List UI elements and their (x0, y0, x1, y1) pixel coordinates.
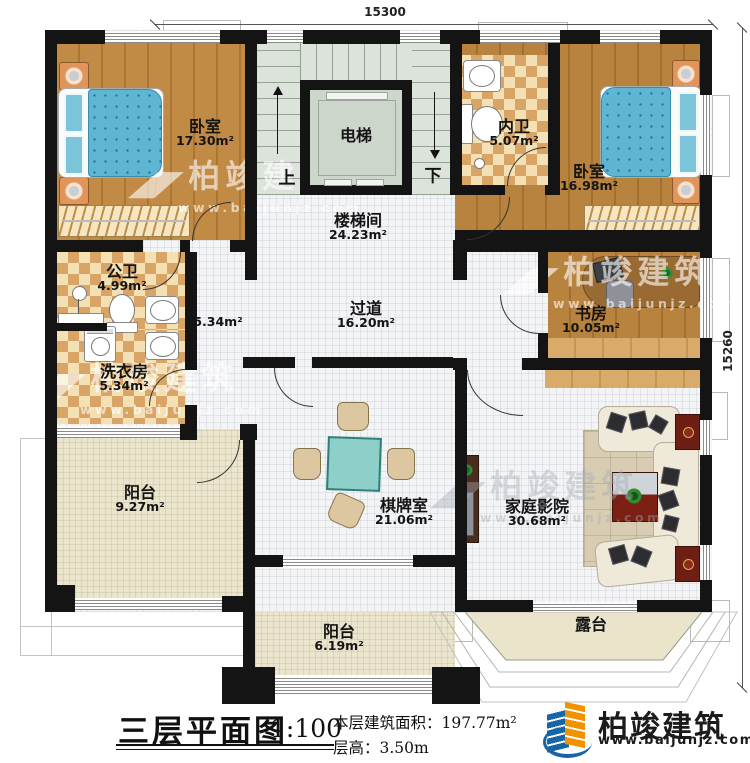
window (533, 602, 637, 612)
sofa-cushion (661, 467, 681, 487)
stair-down-label: 下 (425, 162, 442, 187)
pier (432, 667, 480, 704)
wall (545, 185, 560, 195)
wall (450, 42, 462, 195)
floor-drain (474, 158, 485, 169)
wall (243, 440, 255, 668)
wall (455, 368, 467, 612)
table-plant (625, 487, 643, 505)
vanity-sink (145, 332, 179, 360)
room-label-stairwell: 楼梯间 24.23m² (329, 213, 387, 242)
dimension-right-value: 15260 (721, 330, 735, 372)
room-label-bedroom2: 卧室 16.98m² (560, 164, 618, 193)
window (600, 31, 660, 43)
side-table-deco (683, 559, 694, 570)
stair-arrow-down (434, 92, 435, 154)
window (701, 95, 711, 175)
wall (240, 424, 257, 440)
pillow (64, 93, 84, 133)
dimension-line-right (742, 28, 743, 688)
wall (45, 240, 143, 252)
stair-arrow-up-head (273, 86, 283, 95)
eave-outline-bottom-left (20, 626, 252, 656)
elevator-slot-bl (324, 179, 352, 186)
window (105, 31, 220, 43)
wall (45, 30, 57, 585)
elevator-slot-br (356, 179, 384, 186)
floor-area-label: 本层建筑面积： (333, 714, 442, 732)
wardrobe-rod (588, 220, 695, 222)
theater-top-strip (545, 370, 700, 388)
floor-height-row: 层高：3.50m (333, 736, 429, 758)
nightstand (672, 60, 700, 88)
stair-arrow-down-head (430, 150, 440, 159)
wall (243, 357, 295, 368)
desk-chair (606, 280, 634, 308)
window (701, 258, 711, 338)
wall (522, 358, 712, 370)
wall (538, 243, 548, 293)
sink-basin (150, 336, 176, 357)
hall-area-label: 5.34m² (193, 316, 242, 329)
wall (312, 357, 453, 368)
wall (700, 338, 712, 420)
window (400, 31, 440, 43)
window (57, 426, 180, 438)
wall (538, 333, 548, 360)
floor-plan-page: { "plan": { "dimensions": { "top": "1530… (0, 0, 750, 763)
wall (230, 240, 257, 252)
wall (45, 424, 57, 440)
window (480, 31, 560, 43)
side-table (675, 414, 700, 450)
floor-area-value: 197.77m² (442, 714, 517, 732)
wall (455, 230, 712, 243)
stair-treads-top (300, 42, 412, 80)
pillow (678, 134, 698, 174)
railing (75, 598, 222, 610)
wall (460, 185, 505, 195)
company-logo-icon (545, 700, 595, 758)
chair (293, 448, 321, 480)
wall (243, 555, 283, 567)
room-label-balcony1: 阳台 9.27m² (115, 485, 164, 514)
floor-height-value: 3.50m (380, 739, 429, 757)
wall (180, 424, 197, 440)
room-label-public-bath: 公卫 4.99m² (97, 264, 146, 293)
vanity-sink (145, 296, 179, 324)
desk-plant (660, 266, 674, 280)
window (267, 31, 303, 43)
room-label-corridor: 过道 16.20m² (337, 301, 395, 330)
room-label-terrace: 露台 (575, 617, 607, 633)
room-label-elevator: 电梯 (340, 128, 372, 144)
wardrobe (58, 205, 190, 237)
logo-swoosh (543, 726, 592, 758)
wall (700, 455, 712, 545)
bay-window-right-1 (712, 95, 730, 177)
side-table-deco (683, 427, 694, 438)
floor-area-row: 本层建筑面积：197.77m² (333, 711, 517, 733)
pillow (64, 135, 84, 175)
sink-basin (469, 65, 495, 87)
room-label-study: 书房 10.05m² (562, 306, 620, 335)
room-label-balcony2: 阳台 6.19m² (314, 624, 363, 653)
plan-scale: 1:100 (270, 714, 342, 743)
game-table (326, 436, 382, 492)
stand-lamp-stem (78, 299, 79, 313)
wall (560, 30, 600, 44)
stair-arrow-up (277, 92, 278, 154)
company-website: www.baijunjz.com (598, 733, 750, 748)
window (701, 420, 711, 455)
washing-machine (84, 326, 116, 362)
sofa-cushion (628, 410, 648, 430)
sink-basin (150, 300, 176, 321)
railing (275, 676, 432, 696)
room-label-laundry: 洗衣房 5.34m² (99, 364, 148, 393)
wall (185, 330, 197, 370)
dimension-top-value: 15300 (364, 5, 406, 19)
dimension-line-top (155, 24, 713, 25)
room-label-inner-bath: 内卫 5.07m² (489, 119, 538, 148)
title-underline (116, 744, 334, 746)
study-bay-strip (548, 338, 700, 358)
floor-height-label: 层高： (333, 739, 380, 757)
wall (548, 42, 560, 195)
window (283, 557, 413, 568)
wall (700, 30, 712, 95)
window (701, 545, 711, 580)
chair (387, 448, 415, 480)
chair (337, 402, 369, 431)
washer-door (91, 337, 110, 356)
stair-up-label: 上 (279, 164, 296, 189)
wardrobe-rod (63, 220, 185, 222)
nightstand (59, 62, 89, 90)
corner-pier (222, 596, 248, 612)
bed-quilt (88, 89, 162, 177)
stand-lamp (72, 286, 87, 301)
pillow (678, 92, 698, 132)
elevator-door-slot (326, 92, 388, 100)
wall (45, 323, 107, 331)
nightstand (672, 176, 700, 204)
room-label-home-theater: 家庭影院 30.68m² (505, 499, 569, 528)
room-label-bedroom1: 卧室 17.30m² (176, 119, 234, 148)
corner-pier (45, 585, 75, 612)
side-table (675, 546, 700, 582)
sink (463, 60, 501, 92)
room-label-chess-room: 棋牌室 21.06m² (375, 498, 433, 527)
title-underline (116, 749, 334, 750)
wall (180, 240, 190, 252)
wall (303, 30, 400, 44)
pier (222, 667, 275, 704)
wall (637, 600, 712, 612)
nightstand (59, 177, 89, 205)
wall (220, 30, 267, 44)
